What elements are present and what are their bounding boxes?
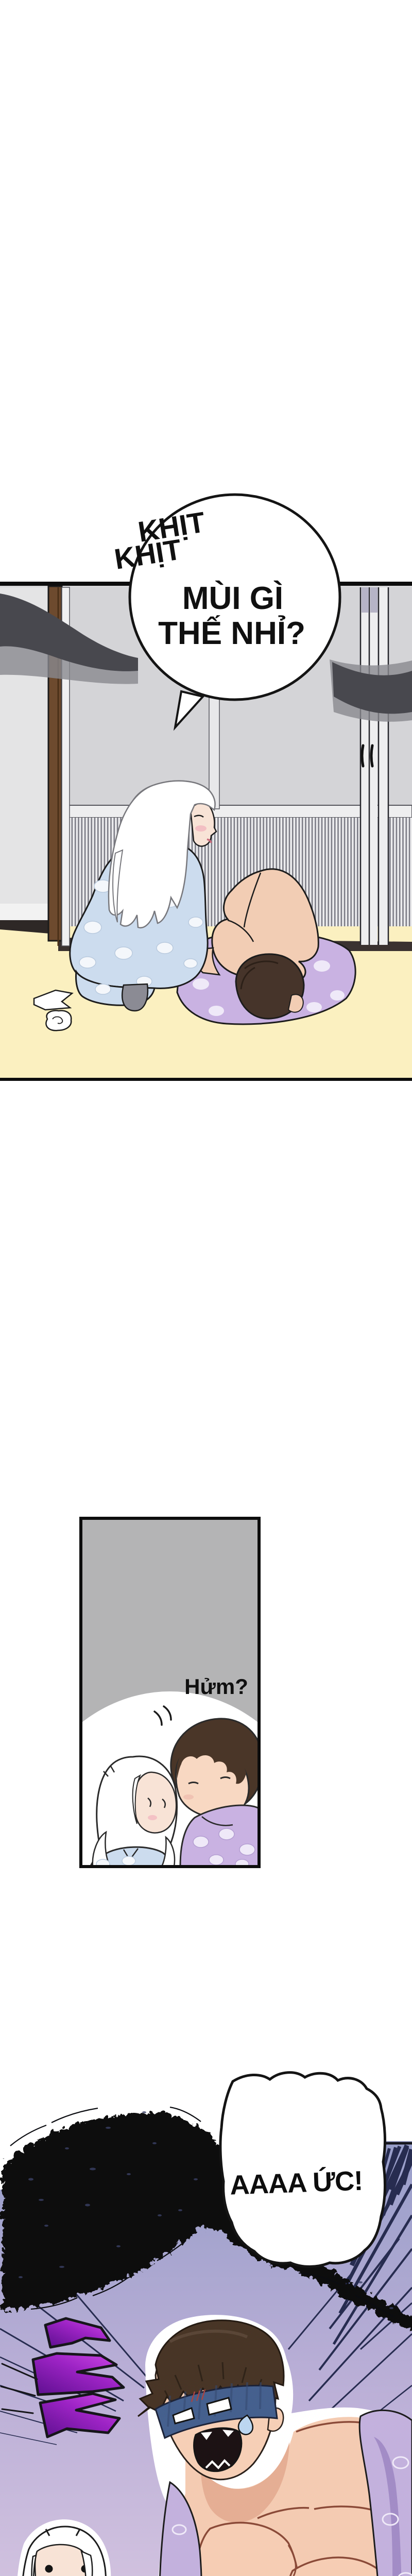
svg-text:MÙI GÌ: MÙI GÌ — [182, 581, 283, 616]
svg-text:Hửm?: Hửm? — [184, 1674, 248, 1699]
svg-text:THẾ NHỈ?: THẾ NHỈ? — [158, 616, 305, 651]
svg-text:AAAA ỨC!: AAAA ỨC! — [229, 2165, 363, 2201]
